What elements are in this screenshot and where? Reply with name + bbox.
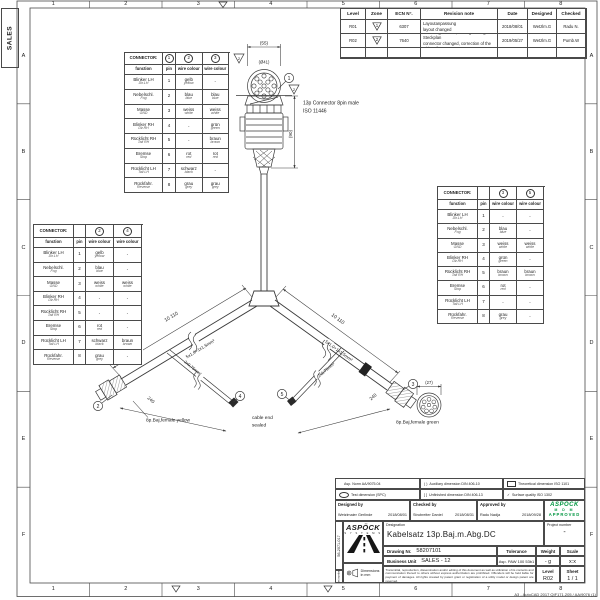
legend-text: Unfinished dimension DIN 406-13 bbox=[429, 493, 483, 497]
zone-label-left: E bbox=[19, 436, 29, 442]
wire-colour-cell: rotred bbox=[203, 149, 230, 164]
wire-colour-header: wire colour bbox=[490, 200, 517, 210]
connector-table-top-left: CONNECTOR:123functionpinwire colourwire … bbox=[124, 52, 230, 193]
function-cell: Rückfahr.Reverse bbox=[125, 178, 163, 193]
zone-label-top: 2 bbox=[121, 1, 131, 7]
cable-end-note: cable end bbox=[252, 415, 273, 421]
designation-cell: Designation Kabelsatz 13p.Baj.m.Abg.DC bbox=[383, 521, 544, 546]
connector-13p-side-view bbox=[236, 96, 292, 175]
wire-colour-cell: blaublue bbox=[176, 90, 203, 105]
revision-header-designed: Designed bbox=[528, 9, 557, 20]
function-header: function bbox=[438, 200, 478, 210]
wire-colour-cell: - bbox=[490, 210, 517, 224]
wire-colour-cell: - bbox=[517, 281, 544, 295]
function-cell: MasseGND bbox=[34, 277, 74, 292]
format-note: A3 - AutoCAD 2017 QIF171.205 / AA/9076 (… bbox=[300, 592, 596, 597]
pin-cell: 1 bbox=[74, 248, 86, 263]
legal-disclaimer: Transmittal, reproduction, dissemination… bbox=[383, 566, 536, 583]
revision-empty-cell bbox=[421, 48, 498, 58]
wire-colour-cell: - bbox=[114, 321, 142, 336]
cable-label-tag bbox=[358, 362, 372, 376]
connector-8p-green-face-view bbox=[417, 393, 441, 417]
zone-label-left: B bbox=[19, 149, 29, 155]
drawing-number-label: Drawing Nr. bbox=[387, 549, 411, 554]
weight-label-cell: Weight bbox=[536, 546, 560, 556]
function-cell: Rücklicht LHTail LH bbox=[125, 164, 163, 179]
function-cell: Nebelschl.Fog bbox=[125, 90, 163, 105]
zone-label-bottom: 1 bbox=[48, 586, 58, 592]
wire-colour-cell: schwarzblack bbox=[176, 164, 203, 179]
scale-label-cell: Scale bbox=[560, 546, 585, 556]
pin-cell: 3 bbox=[163, 105, 176, 120]
revision-header-checked: Checked bbox=[557, 9, 586, 20]
function-cell: Blinker RHDir.RH bbox=[125, 119, 163, 134]
cable-end-note: sealed bbox=[252, 423, 266, 429]
connector-ref: 2 bbox=[86, 225, 114, 238]
pin-cell: 5 bbox=[74, 306, 86, 321]
wire-colour-cell: graugrey bbox=[176, 178, 203, 193]
balloon-3: 3 bbox=[412, 382, 415, 388]
part-number-vertical: 56-2071-017 bbox=[337, 535, 341, 557]
sales-stamp: SALES bbox=[1, 8, 19, 68]
zone-label-top: 7 bbox=[483, 1, 493, 7]
wire-colour-cell: blaublue bbox=[86, 263, 114, 278]
zone-label-bottom: 5 bbox=[338, 586, 348, 592]
connector-ref-pin bbox=[74, 225, 86, 238]
pin-cell: 8 bbox=[74, 350, 86, 365]
dim-right-stub: 240 bbox=[368, 392, 377, 401]
zone-label-top: 1 bbox=[48, 1, 58, 7]
weight-value-cell: - g bbox=[536, 556, 560, 566]
wire-colour-cell: graugrey bbox=[86, 350, 114, 365]
wire-colour-cell: rotred bbox=[176, 149, 203, 164]
revision-table: Level Zone ECN N°. Revision note Date De… bbox=[340, 8, 587, 59]
zone-label-top: 3 bbox=[193, 1, 203, 7]
revision-header-zone: Zone bbox=[366, 9, 388, 20]
pin-cell: 5 bbox=[478, 267, 490, 281]
zone-label-left: C bbox=[19, 245, 29, 251]
pin-cell: 8 bbox=[163, 178, 176, 193]
pin-header: pin bbox=[478, 200, 490, 210]
approved-by-name: Radu Nadja bbox=[480, 513, 500, 517]
dimensions-note: Dimensions in mm bbox=[361, 569, 382, 578]
wire-colour-cell: - bbox=[203, 75, 230, 90]
wire-colour-cell: rotred bbox=[86, 321, 114, 336]
revision-header-ecn: ECN N°. bbox=[388, 9, 421, 20]
dim-diameter-41: (Ø41) bbox=[259, 60, 270, 65]
revision-level: R02 bbox=[341, 34, 366, 48]
wire-colour-cell: grüngreen bbox=[490, 253, 517, 267]
cable-harness bbox=[121, 174, 392, 404]
connector-ref-pin bbox=[478, 187, 490, 200]
road-graphic-icon bbox=[345, 535, 381, 553]
function-cell: Blinker RHDir.RH bbox=[438, 253, 478, 267]
sealed-cable-end-right bbox=[287, 397, 297, 407]
scale-value-cell: x:x bbox=[560, 556, 585, 566]
balloon-2: 2 bbox=[97, 404, 100, 410]
drawing-number-cell: Drawing Nr. 58207101 bbox=[383, 546, 497, 556]
zone-label-bottom: 4 bbox=[266, 586, 276, 592]
function-header: function bbox=[34, 238, 74, 248]
designation-label: Designation bbox=[384, 522, 543, 527]
function-cell: Rücklicht RHTail RH bbox=[438, 267, 478, 281]
pin-cell: 2 bbox=[74, 263, 86, 278]
dim-height-90: (90) bbox=[288, 129, 293, 138]
pin-cell: 3 bbox=[74, 277, 86, 292]
revision-note: Layoutanpassunglayout changed bbox=[421, 20, 498, 34]
revision-level: R01 bbox=[341, 20, 366, 34]
drawing-sheet: 1 2 3 4 5 2 2 (55) (Ø41) (90) (27) 10 11… bbox=[0, 0, 600, 600]
tolerance-value-cell: Asp. PAW 100 53b1 bbox=[497, 556, 536, 566]
function-cell: BremseStop bbox=[125, 149, 163, 164]
wire-colour-cell: - bbox=[517, 310, 544, 324]
logo-brand-text: ASPÖCK bbox=[344, 523, 382, 532]
wire-colour-cell: weisswhite bbox=[114, 277, 142, 292]
part-number-label: Part number bbox=[338, 570, 341, 583]
designed-by-date: 2018/08/01 bbox=[388, 513, 407, 517]
zone-label-left: D bbox=[19, 340, 29, 346]
sales-stamp-text: SALES bbox=[7, 26, 14, 50]
revision-designed: Wetzlm.G bbox=[528, 20, 557, 34]
function-cell: MasseGND bbox=[125, 105, 163, 120]
function-cell: Rückfahr.Reverse bbox=[438, 310, 478, 324]
wire-colour-cell: blaublue bbox=[203, 90, 230, 105]
parentheses-symbol: ( ) bbox=[424, 482, 427, 486]
function-cell: Rücklicht LHTail LH bbox=[34, 336, 74, 351]
legend-asp-norm: Asp. Norm AA/9075.04 bbox=[335, 478, 420, 489]
wire-colour-cell: - bbox=[114, 263, 142, 278]
zone-label-right: F bbox=[587, 532, 597, 538]
wire-colour-header: wire colour bbox=[114, 238, 142, 248]
revision-note: Stecker geändert , Richtigstellung Steck… bbox=[421, 34, 498, 48]
zone-label-bottom: 3 bbox=[193, 586, 203, 592]
revision-empty-cell bbox=[341, 48, 366, 58]
function-cell: Rücklicht RHTail RH bbox=[125, 134, 163, 149]
wire-colour-cell: weisswhite bbox=[176, 105, 203, 120]
wire-colour-cell: - bbox=[517, 253, 544, 267]
function-cell: BremseStop bbox=[34, 321, 74, 336]
wire-colour-cell: - bbox=[490, 296, 517, 310]
connector-ref: 3 bbox=[203, 53, 230, 65]
wire-colour-cell: weisswhite bbox=[517, 239, 544, 253]
wire-colour-cell: gelbyellow bbox=[176, 75, 203, 90]
part-number-strip: 56-2071-017 bbox=[335, 521, 343, 570]
checked-by-name: Strubreiter Daniel bbox=[413, 513, 443, 517]
zone-label-right: E bbox=[587, 436, 597, 442]
function-cell: Nebelschl.Fog bbox=[438, 224, 478, 238]
pin-cell: 1 bbox=[163, 75, 176, 90]
function-cell: Rücklicht RHTail RH bbox=[34, 306, 74, 321]
main-connector-label: 13p Connector 8pin male bbox=[303, 101, 359, 107]
mdm-approved-stamp: ASPÖCK M D M APPROVED bbox=[544, 500, 585, 521]
revision-empty-cell bbox=[557, 48, 586, 58]
wire-colour-cell: - bbox=[203, 164, 230, 179]
revision-date: 2018/08/01 bbox=[498, 20, 528, 34]
zone-label-right: A bbox=[587, 53, 597, 59]
revision-empty-cell bbox=[498, 48, 528, 58]
wire-colour-cell: - bbox=[176, 119, 203, 134]
wire-colour-cell: - bbox=[114, 350, 142, 365]
pin-cell: 7 bbox=[163, 164, 176, 179]
function-cell: Blinker LHDir.LH bbox=[34, 248, 74, 263]
wire-colour-cell: weisswhite bbox=[203, 105, 230, 120]
revision-zone-flag: 1 bbox=[366, 20, 388, 34]
wire-colour-cell: - bbox=[114, 306, 142, 321]
sheet-cell: Sheet 1 / 1 bbox=[560, 566, 585, 583]
zone-label-right: D bbox=[587, 340, 597, 346]
wire-colour-cell: weisswhite bbox=[490, 239, 517, 253]
revision-empty-cell bbox=[388, 48, 421, 58]
revision-empty-cell bbox=[528, 48, 557, 58]
function-cell: Blinker LHDir.LH bbox=[125, 75, 163, 90]
wire-colour-cell: - bbox=[517, 296, 544, 310]
revision-zone-flag: 2 bbox=[366, 34, 388, 48]
wire-colour-cell: blaublue bbox=[490, 224, 517, 238]
connector-table-right: CONNECTOR:35functionpinwire colourwire c… bbox=[437, 186, 545, 324]
projection-symbol-icon bbox=[346, 567, 359, 579]
connector-ref-pin: 1 bbox=[163, 53, 176, 65]
pin-cell: 4 bbox=[163, 119, 176, 134]
zone-label-bottom: 7 bbox=[483, 586, 493, 592]
wire-colour-cell: - bbox=[176, 134, 203, 149]
wire-colour-cell: graugrey bbox=[490, 310, 517, 324]
stamp-approved: APPROVED bbox=[545, 513, 584, 518]
oval-symbol-icon bbox=[339, 492, 349, 498]
aspoeck-logo: ASPÖCK S Y S T E M S bbox=[343, 521, 383, 563]
wire-colour-cell: - bbox=[517, 224, 544, 238]
wire-colour-header: wire colour bbox=[86, 238, 114, 248]
connector-ref: 5 bbox=[517, 187, 544, 200]
revision-header-note: Revision note bbox=[421, 9, 498, 20]
wire-colour-cell: braunbrown bbox=[490, 267, 517, 281]
function-cell: MasseGND bbox=[438, 239, 478, 253]
pin-cell: 1 bbox=[478, 210, 490, 224]
check-symbol-icon: ✓ bbox=[507, 493, 510, 497]
wire-colour-cell: - bbox=[114, 292, 142, 307]
revision-checked: Radu N. bbox=[557, 20, 586, 34]
pin-cell: 6 bbox=[478, 281, 490, 295]
pin-cell: 2 bbox=[163, 90, 176, 105]
legend-text: Surface quality ISO 1302 bbox=[512, 493, 552, 497]
zone-label-top: 6 bbox=[411, 1, 421, 7]
zone-label-left: F bbox=[19, 532, 29, 538]
revision-checked: Pumb.W bbox=[557, 34, 586, 48]
revision-ecn: 7640 bbox=[388, 34, 421, 48]
wire-colour-cell: schwarzblack bbox=[86, 336, 114, 351]
designed-by-cell: Designed by Wetzlmaier Gerlinde 2018/08/… bbox=[335, 500, 410, 521]
pin-cell: 2 bbox=[478, 224, 490, 238]
brackets-symbol: [ ] bbox=[424, 493, 427, 497]
revision-empty-cell bbox=[366, 48, 388, 58]
revision-ecn: 6307 bbox=[388, 20, 421, 34]
wire-colour-cell: - bbox=[114, 248, 142, 263]
legend-text: Asp. Norm AA/9075.04 bbox=[344, 482, 381, 486]
pin-cell: 4 bbox=[74, 292, 86, 307]
designed-by-name: Wetzlmaier Gerlinde bbox=[338, 513, 372, 517]
zone-label-bottom: 8 bbox=[556, 586, 566, 592]
revision-designed: Wetzlm.G bbox=[528, 34, 557, 48]
balloon-5: 5 bbox=[281, 392, 284, 398]
wire-colour-header: wire colour bbox=[176, 65, 203, 75]
dim-left-branch: 10 110 bbox=[164, 311, 180, 324]
yellow-connector-label: 8p.Baj,female yellow bbox=[146, 418, 191, 424]
project-number-cell: Project number - bbox=[544, 521, 585, 546]
business-unit-label: Business Unit bbox=[387, 559, 416, 564]
function-header: function bbox=[125, 65, 163, 75]
wire-colour-cell: - bbox=[86, 306, 114, 321]
sheet-value: 1 / 1 bbox=[561, 574, 584, 582]
function-cell: Blinker LHDir.LH bbox=[438, 210, 478, 224]
legend-surface-quality: ✓ Surface quality ISO 1302 bbox=[503, 489, 585, 500]
connector-table-title: CONNECTOR: bbox=[438, 187, 478, 200]
dim-width-55: (55) bbox=[260, 41, 269, 46]
connector-ref: 4 bbox=[114, 225, 142, 238]
pin-cell: 3 bbox=[478, 239, 490, 253]
dim-green-diameter-27: (27) bbox=[425, 380, 433, 385]
pin-cell: 6 bbox=[74, 321, 86, 336]
pin-cell: 4 bbox=[478, 253, 490, 267]
pin-header: pin bbox=[163, 65, 176, 75]
zone-label-right: C bbox=[587, 245, 597, 251]
tolerance-label-cell: Tolerance bbox=[497, 546, 536, 556]
function-cell: BremseStop bbox=[438, 281, 478, 295]
zone-label-top: 5 bbox=[338, 1, 348, 7]
approved-by-cell: Approved by Radu Nadja 2018/09/28 bbox=[477, 500, 544, 521]
connector-table-bottom-left: CONNECTOR:24functionpinwire colourwire c… bbox=[33, 224, 143, 365]
legend-unfinished-dimension: [ ] Unfinished dimension DIN 406-13 bbox=[420, 489, 503, 500]
zone-label-left: A bbox=[19, 53, 29, 59]
checked-by-cell: Checked by Strubreiter Daniel 2018/08/31 bbox=[410, 500, 477, 521]
connector-ref: 2 bbox=[176, 53, 203, 65]
wire-colour-cell: - bbox=[86, 292, 114, 307]
wire-colour-cell: graugrey bbox=[203, 178, 230, 193]
dim-left-stub: 240 bbox=[146, 395, 155, 404]
pin-cell: 7 bbox=[478, 296, 490, 310]
wire-colour-cell: rotred bbox=[490, 281, 517, 295]
green-connector-label: 8p.Baj,female green bbox=[396, 420, 439, 426]
pin-header: pin bbox=[74, 238, 86, 248]
project-number-label: Project number bbox=[545, 522, 584, 527]
pin-cell: 7 bbox=[74, 336, 86, 351]
part-number-label-cell: Part number bbox=[335, 570, 343, 583]
zone-label-bottom: 2 bbox=[121, 586, 131, 592]
legend-auxiliary-dimension: ( ) Auxiliary dimension DIN 406-10 bbox=[420, 478, 503, 489]
connector-table-title: CONNECTOR: bbox=[34, 225, 74, 238]
zone-label-top: 8 bbox=[556, 1, 566, 7]
zone-label-right: B bbox=[587, 149, 597, 155]
dimensions-note-cell: Dimensions in mm bbox=[343, 563, 383, 583]
wire-colour-header: wire colour bbox=[517, 200, 544, 210]
revision-header-date: Date bbox=[498, 9, 528, 20]
pin-cell: 6 bbox=[163, 149, 176, 164]
business-unit-value: SALES - 12 bbox=[421, 558, 450, 564]
zone-label-top: 4 bbox=[266, 1, 276, 7]
business-unit-cell: Business Unit SALES - 12 bbox=[383, 556, 497, 566]
legend-test-dimension: Test dimension (SPC) bbox=[335, 489, 420, 500]
balloon-4: 4 bbox=[239, 394, 242, 400]
dim-right-branch: 10 110 bbox=[330, 312, 346, 326]
legend-text: Theoretical dimension ISO 1101 bbox=[518, 482, 569, 486]
wire-colour-header: wire colour bbox=[203, 65, 230, 75]
project-number-value: - bbox=[545, 529, 584, 536]
wire-colour-cell: braunbrown bbox=[203, 134, 230, 149]
wire-colour-cell: braunbrown bbox=[114, 336, 142, 351]
balloon-1: 1 bbox=[288, 76, 291, 82]
legend-text: Test dimension (SPC) bbox=[351, 493, 386, 497]
wire-colour-cell: braunbrown bbox=[517, 267, 544, 281]
approved-by-date: 2018/09/28 bbox=[522, 513, 541, 517]
legend-text: Auxiliary dimension DIN 406-10 bbox=[429, 482, 479, 486]
main-connector-standard: ISO 11446 bbox=[303, 109, 327, 115]
level-cell: Level R02 bbox=[536, 566, 560, 583]
rectangle-symbol-icon bbox=[507, 481, 516, 487]
wire-colour-cell: gelbyellow bbox=[86, 248, 114, 263]
wire-colour-cell: grüngreen bbox=[203, 119, 230, 134]
pin-cell: 8 bbox=[478, 310, 490, 324]
function-cell: Blinker RHDir.RH bbox=[34, 292, 74, 307]
legend-theoretical-dimension: Theoretical dimension ISO 1101 bbox=[503, 478, 585, 489]
revision-header-level: Level bbox=[341, 9, 366, 20]
wire-colour-cell: weisswhite bbox=[86, 277, 114, 292]
drawing-number-value: 58207101 bbox=[416, 548, 441, 554]
pin-cell: 5 bbox=[163, 134, 176, 149]
drawing-title: Kabelsatz 13p.Baj.m.Abg.DC bbox=[384, 530, 543, 539]
function-cell: Nebelschl.Fog bbox=[34, 263, 74, 278]
revision-date: 2019/05/27 bbox=[498, 34, 528, 48]
connector-table-title: CONNECTOR: bbox=[125, 53, 163, 65]
connector-ref: 3 bbox=[490, 187, 517, 200]
checked-by-date: 2018/08/31 bbox=[455, 513, 474, 517]
function-cell: Rücklicht LHTail LH bbox=[438, 296, 478, 310]
cable-spec-left: 5x1,0+1x1,5mm² bbox=[185, 338, 216, 359]
function-cell: Rückfahr.Reverse bbox=[34, 350, 74, 365]
zone-label-bottom: 6 bbox=[411, 586, 421, 592]
wire-colour-cell: - bbox=[517, 210, 544, 224]
level-value: R02 bbox=[537, 574, 559, 582]
